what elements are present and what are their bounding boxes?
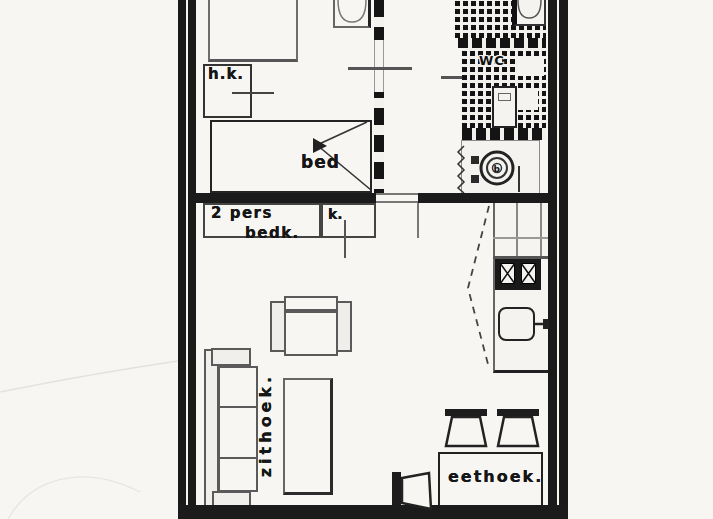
dining-area-label: eethoek. xyxy=(448,468,543,486)
side-chair-legs xyxy=(402,473,431,509)
kitchen-counter-diagonal xyxy=(468,206,489,368)
small-closet-label: k. xyxy=(328,207,343,222)
hall-washbasin-bowl xyxy=(338,0,366,22)
hanging-closet-label: h.k. xyxy=(208,66,244,83)
bathroom-washbasin-bowl xyxy=(518,0,541,18)
burner-cross-marks xyxy=(500,263,536,284)
sitting-area-label: zithoek. xyxy=(257,373,275,477)
boiler-valve-2 xyxy=(471,175,479,183)
dining-chair-1-legs xyxy=(446,417,486,446)
dining-chair-2-legs xyxy=(498,417,538,446)
line-art-overlay: b xyxy=(0,0,713,519)
bed-closet-label-line2: bedk. xyxy=(245,225,300,242)
scan-artifact-curve-1 xyxy=(0,361,178,392)
scan-artifact-curve-2 xyxy=(8,477,140,519)
faucet-tap xyxy=(543,319,549,329)
boiler-label: b xyxy=(494,164,501,174)
bed-label: bed xyxy=(301,153,340,172)
bed-closet-label-line1: 2 pers xyxy=(211,205,273,222)
boiler-room-zigzag-edge xyxy=(458,146,464,193)
boiler-valve-1 xyxy=(471,156,479,164)
floor-plan: b h.k. bed 2 pers bedk. k. WC zithoek. e… xyxy=(0,0,713,519)
wc-label: WC xyxy=(479,54,505,68)
